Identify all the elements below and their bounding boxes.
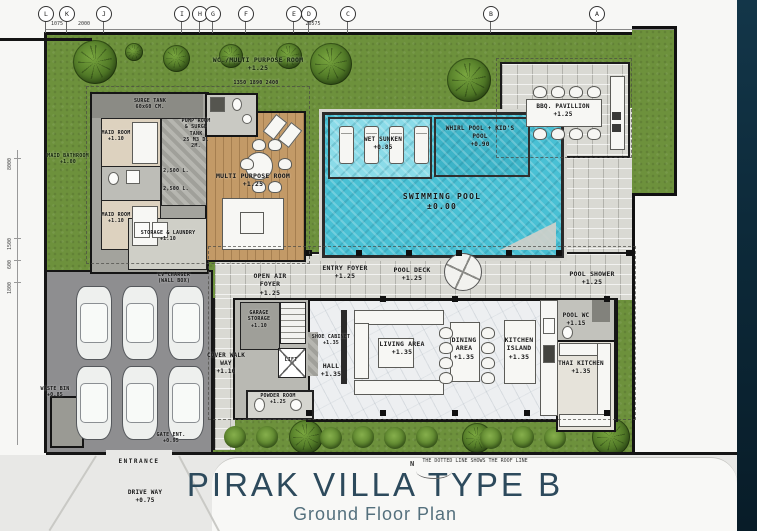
dimension-text: 1500 xyxy=(8,238,13,250)
chair xyxy=(268,139,282,151)
label-gate-ent: GATE ENT.+0.95 xyxy=(145,432,197,445)
plan-subtitle: Ground Floor Plan xyxy=(150,504,600,525)
dim-tick xyxy=(14,238,21,239)
label-drive-way: DRIVE WAY+0.75 xyxy=(115,489,175,505)
grid-marker: K xyxy=(59,6,75,22)
column xyxy=(506,250,512,256)
shrub xyxy=(416,426,438,448)
roof-line-note-line1: THE DOTTED LINE SHOWS xyxy=(422,458,485,464)
toilet-icon xyxy=(562,326,573,339)
chair xyxy=(240,158,254,170)
dim-tick xyxy=(14,158,21,159)
staircase xyxy=(280,302,306,344)
top-dim-line xyxy=(45,29,674,30)
tree xyxy=(289,420,323,454)
shrub xyxy=(320,427,342,449)
car xyxy=(76,286,112,360)
dim-tick xyxy=(596,26,597,32)
label-living-area: LIVING AREA+1.35 xyxy=(366,340,438,357)
dim-tick xyxy=(14,260,21,261)
roof-line-note-line2: THE ROOF LINE xyxy=(489,458,528,464)
label-cover-walkway: COVER WALK WAY+1.10 xyxy=(203,352,249,375)
label-lift: LIFT xyxy=(276,357,306,363)
shower-icon xyxy=(126,170,140,184)
dimension-text: 20575 xyxy=(305,22,320,27)
floor-plan-sheet: PIRAK VILLA TYPE B Ground Floor Plan THE… xyxy=(0,0,757,531)
dim-tick xyxy=(66,26,67,32)
shrub xyxy=(352,426,374,448)
grid-marker: D xyxy=(301,6,317,22)
chair xyxy=(533,86,547,98)
column xyxy=(380,410,386,416)
label-multi-purpose: MULTI PURPOSE ROOM+1.25 xyxy=(211,172,295,189)
shrub xyxy=(512,426,534,448)
label-wc-multi-purpose: WC./MULTI PURPOSE ROOM+1.25 xyxy=(198,56,318,73)
car xyxy=(122,366,158,440)
grid-marker: L xyxy=(38,6,54,22)
sofa xyxy=(354,380,444,395)
dim-tick xyxy=(490,26,491,32)
dim-tick xyxy=(212,26,213,32)
label-dining-area: DINING AREA+1.35 xyxy=(443,336,485,361)
dimension-text: 2000 xyxy=(78,22,90,27)
dim-tick xyxy=(181,26,182,32)
plan-title: PIRAK VILLA TYPE B xyxy=(150,466,600,504)
label-entry-foyer: ENTRY FOYER+1.25 xyxy=(307,264,383,281)
label-wet-sunken: WET SUNKEN+0.85 xyxy=(343,136,423,152)
grid-marker: G xyxy=(205,6,221,22)
car xyxy=(76,366,112,440)
chair xyxy=(587,128,601,140)
label-wc-dims: 1350 1890 2400 xyxy=(201,80,311,86)
label-hall: HALL+1.35 xyxy=(313,362,349,379)
car xyxy=(168,366,204,440)
bbq-grill-icon xyxy=(612,112,621,120)
label-tank-capacity-2: 2,500 L. xyxy=(159,186,193,192)
label-shoe-cabinet: SHOE CABINET+1.35 xyxy=(309,334,353,347)
chair xyxy=(439,372,453,384)
label-kitchen-island: KITCHEN ISLAND+1.35 xyxy=(496,336,542,361)
chair xyxy=(569,128,583,140)
shower-icon xyxy=(210,97,225,112)
dimension-text: 1075 xyxy=(51,22,63,27)
left-dim-line xyxy=(17,150,18,445)
chair xyxy=(569,86,583,98)
side-accent-band xyxy=(737,0,757,531)
deck-feature-circle xyxy=(444,253,482,291)
tree xyxy=(163,45,190,72)
label-waste-bin: WASTE BIN+0.85 xyxy=(31,386,79,399)
dimension-text: 1800 xyxy=(8,282,13,294)
label-maid-bathroom: MAID BATHROOM+1.00 xyxy=(46,153,90,166)
tree xyxy=(125,43,143,61)
toilet-icon xyxy=(108,172,119,185)
column xyxy=(524,410,530,416)
dim-tick xyxy=(347,26,348,32)
column xyxy=(556,250,562,256)
label-swimming-pool: SWIMMING POOL±0.00 xyxy=(377,192,507,213)
label-surge-tank: SURGE TANK60x60 CM. xyxy=(103,98,198,111)
column xyxy=(356,250,362,256)
grid-marker: E xyxy=(286,6,302,22)
label-thai-kitchen: THAI KITCHEN+1.35 xyxy=(558,360,604,376)
roof-line-note: THE DOTTED LINE SHOWS THE ROOF LINE xyxy=(420,458,530,466)
car xyxy=(168,286,204,360)
dim-tick xyxy=(245,26,246,32)
grid-marker: C xyxy=(340,6,356,22)
basin-icon xyxy=(242,114,252,124)
label-pump-room: PUMP ROOM & SURGE TANK25 M3 D. 2M. xyxy=(181,118,211,149)
column xyxy=(306,250,312,256)
label-bbq-pavillion: BBQ. PAVILLION+1.25 xyxy=(523,103,603,119)
column xyxy=(456,250,462,256)
tree xyxy=(73,40,117,84)
grid-marker: J xyxy=(96,6,112,22)
dim-tick xyxy=(293,26,294,32)
dimension-text: 8000 xyxy=(8,158,13,170)
label-storage-laundry: STORAGE & LAUNDRY+1.10 xyxy=(140,230,196,243)
grid-marker: I xyxy=(174,6,190,22)
chair xyxy=(533,128,547,140)
label-entrance: ENTRANCE xyxy=(104,458,174,466)
chair xyxy=(551,86,565,98)
grid-marker: A xyxy=(589,6,605,22)
bed xyxy=(132,122,158,164)
label-open-air-foyer: OPEN AIR FOYER+1.25 xyxy=(242,272,298,297)
column xyxy=(452,296,458,302)
label-whirl-pool: WHIRL POOL + KID'S POOL+0.90 xyxy=(441,125,519,148)
column xyxy=(306,410,312,416)
grid-marker: F xyxy=(238,6,254,22)
label-ev-charger: EV CHARGER(WALL BOX) xyxy=(145,272,203,285)
column xyxy=(604,410,610,416)
dim-tick xyxy=(14,282,21,283)
toilet-icon xyxy=(232,98,242,111)
dim-tick xyxy=(199,26,200,32)
column xyxy=(380,296,386,302)
dim-tick xyxy=(45,26,46,32)
column xyxy=(604,296,610,302)
label-maid-room-1: MAID ROOM+1.10 xyxy=(99,130,133,143)
bbq-sink-icon xyxy=(612,124,621,132)
grid-marker: B xyxy=(483,6,499,22)
label-pool-shower: POOL SHOWER+1.25 xyxy=(556,270,628,287)
label-maid-room-2: MAID ROOM+1.10 xyxy=(99,212,133,225)
shrub xyxy=(256,426,278,448)
label-tank-capacity-1: 2,500 L. xyxy=(159,168,193,174)
label-powder-room: POWDER ROOM+1.25 xyxy=(248,393,308,406)
label-garage-storage: GARAGE STORAGE+1.10 xyxy=(239,310,279,329)
chair xyxy=(587,86,601,98)
dimension-text: 600 xyxy=(8,260,13,269)
tree xyxy=(447,58,491,102)
lawn-northeast xyxy=(632,26,677,196)
column xyxy=(406,250,412,256)
north-arrow-icon: N xyxy=(410,461,414,468)
label-pool-deck: POOL DECK+1.25 xyxy=(381,266,443,283)
shrub xyxy=(480,427,502,449)
chair xyxy=(278,158,292,170)
column xyxy=(626,250,632,256)
chair xyxy=(551,128,565,140)
shrub xyxy=(384,427,406,449)
shrub xyxy=(224,426,246,448)
coffee-table xyxy=(240,212,264,234)
chair xyxy=(481,372,495,384)
site-wall-top-left-stub xyxy=(0,38,92,41)
column xyxy=(452,410,458,416)
stove-icon xyxy=(543,345,555,363)
chair xyxy=(252,139,266,151)
dim-tick xyxy=(103,26,104,32)
label-pool-wc: POOL WC+1.15 xyxy=(551,312,601,328)
car xyxy=(122,286,158,360)
